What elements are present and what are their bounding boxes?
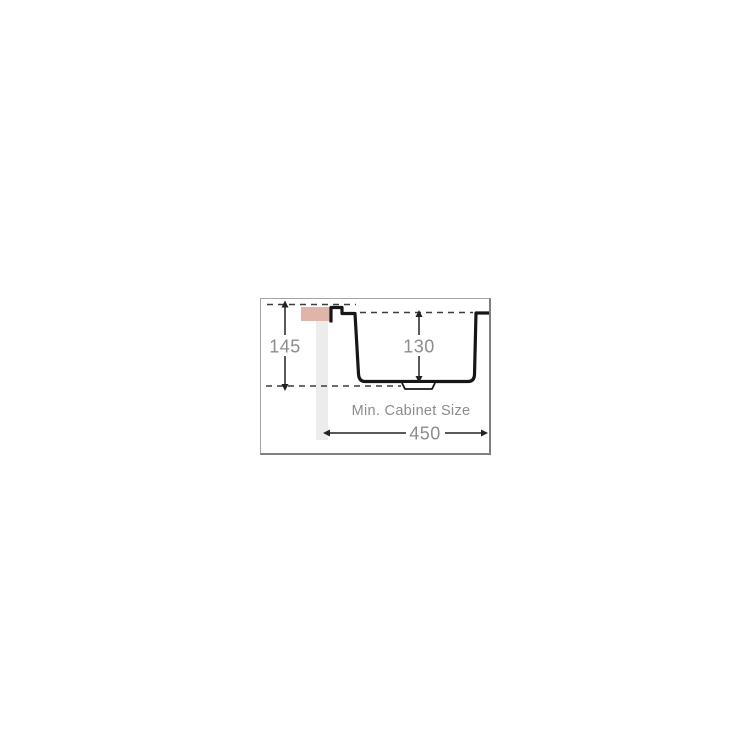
cabinet-side-panel: [316, 321, 328, 440]
sink-dimension-diagram: 145 130 Min. Cabinet Size 450: [260, 298, 491, 455]
width-450-label: 450: [409, 424, 441, 444]
min-cabinet-size-caption: Min. Cabinet Size: [352, 403, 471, 419]
depth-130-label: 130: [403, 337, 435, 357]
height-145-label: 145: [269, 337, 301, 357]
drain-outline: [402, 383, 435, 389]
sink-cross-section-drawing: 145 130 Min. Cabinet Size 450: [261, 299, 489, 453]
page-canvas: 145 130 Min. Cabinet Size 450: [0, 0, 750, 750]
countertop-section: [301, 307, 330, 321]
